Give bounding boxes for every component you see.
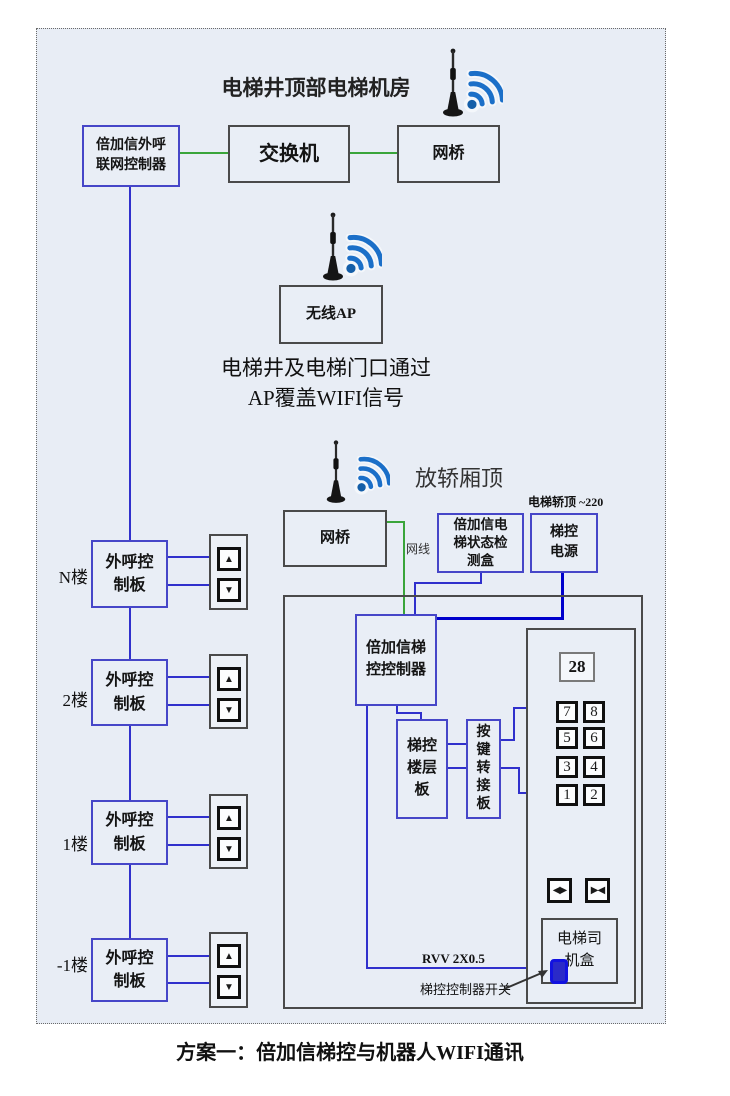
wifi-icon [346,456,390,496]
car-button-1: 1 [556,784,578,806]
status-detect-box: 倍加信电 梯状态检 测盒 [437,513,524,573]
controller-switch-label: 梯控控制器开关 [420,979,511,998]
wire-2-down [166,704,209,706]
car-button-4: 4 [583,756,605,778]
up-arrow-icon: ▲ [217,806,241,830]
elevator-controller-box: 倍加信梯 控控制器 [355,614,437,706]
floor-label-2: 2楼 [30,686,88,711]
wire-board-adapter-2 [446,767,466,769]
elevator-control-power-box: 梯控 电源 [530,513,598,573]
bridge-box-top: 网桥 [397,125,500,183]
wire-status-h [414,582,482,584]
hall-call-board-2: 外呼控 制板 [91,659,168,726]
pointer-arrow-icon [500,962,552,994]
door-close-icon: ▶◀ [585,878,610,903]
ap-note-line1: 电梯井及电梯门口通过 [207,352,445,382]
car-top-title: 放轿厢顶 [415,461,503,493]
bridge-box-car: 网桥 [283,510,387,567]
car-button-2: 2 [583,784,605,806]
wire-controller-switch [178,152,228,154]
wire-minus1-down [166,982,209,984]
switch-box: 交换机 [228,125,350,183]
car-button-7: 7 [556,701,578,723]
ap-note-line2: AP覆盖WIFI信号 [207,382,445,412]
key-adapter-box: 按 键 转 接 板 [466,719,501,819]
floor-display: 28 [559,652,595,682]
down-arrow-icon: ▼ [217,698,241,722]
car-button-3: 3 [556,756,578,778]
wire-1-up [166,816,209,818]
cable-spec-label: RVV 2X0.5 [422,951,485,967]
car-button-8: 8 [583,701,605,723]
wire-adapter-1b [518,767,520,794]
wire-adapter-1a [499,767,520,769]
wire-bridge-out [385,521,404,523]
wire-2-up [166,676,209,678]
floor-board-box: 梯控 楼层 板 [396,719,448,819]
floor-label-1: 1楼 [30,830,88,855]
wire-adapter-7b [513,707,515,741]
wire-n-up [166,556,209,558]
hall-call-board-n: 外呼控 制板 [91,540,168,608]
wireless-ap-box: 无线AP [279,285,383,344]
down-arrow-icon: ▼ [217,975,241,999]
caption: 方案一：倍加信梯控与机器人WIFI通讯 [36,1036,664,1065]
up-arrow-icon: ▲ [217,944,241,968]
wire-switch-v [366,702,368,969]
machine-room-title: 电梯井顶部电梯机房 [206,72,426,102]
wire-switch-bridge [348,152,397,154]
wire-minus1-up [166,955,209,957]
car-power-note: 电梯轿顶 ~220 [528,493,603,510]
up-arrow-icon: ▲ [217,547,241,571]
down-arrow-icon: ▼ [217,837,241,861]
call-network-controller-box: 倍加信外呼 联网控制器 [82,125,180,187]
hall-call-board-minus1: 外呼控 制板 [91,938,168,1002]
car-button-6: 6 [583,727,605,749]
network-cable-label: 网线 [406,540,430,557]
floor-label-n: N楼 [30,563,88,588]
wifi-icon [334,234,382,278]
controller-switch [550,959,568,984]
down-arrow-icon: ▼ [217,578,241,602]
wifi-icon [455,70,503,114]
wire-board-adapter-1 [446,743,466,745]
wire-ctrl-board-h [396,712,422,714]
hall-call-board-1: 外呼控 制板 [91,800,168,865]
door-open-icon: ◀▶ [547,878,572,903]
wire-1-down [166,844,209,846]
wire-n-down [166,584,209,586]
floor-label-minus1: -1楼 [30,951,88,976]
car-button-5: 5 [556,727,578,749]
up-arrow-icon: ▲ [217,667,241,691]
